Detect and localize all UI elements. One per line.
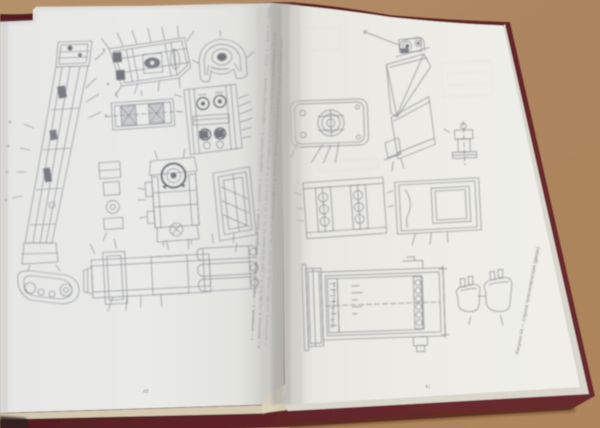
svg-text:40: 40 bbox=[143, 389, 149, 395]
svg-text:41: 41 bbox=[425, 384, 431, 390]
